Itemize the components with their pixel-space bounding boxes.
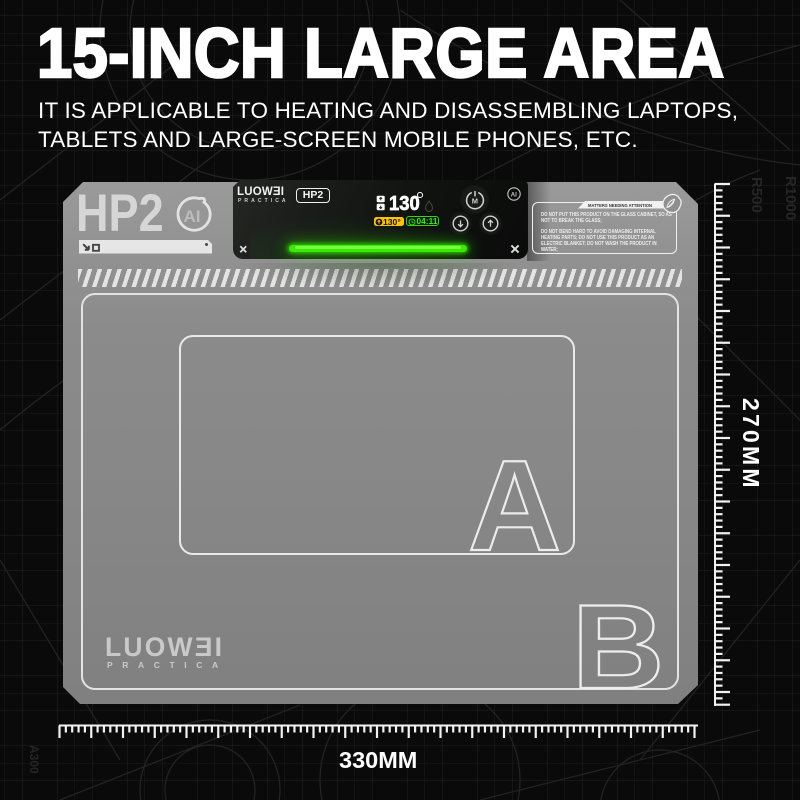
svg-text:R500: R500 bbox=[748, 177, 765, 213]
svg-text:M: M bbox=[471, 196, 477, 205]
svg-text:AI: AI bbox=[184, 207, 201, 226]
svg-text:A300: A300 bbox=[27, 745, 41, 774]
svg-text:AI: AI bbox=[511, 192, 517, 198]
svg-text:R1000: R1000 bbox=[782, 176, 799, 220]
